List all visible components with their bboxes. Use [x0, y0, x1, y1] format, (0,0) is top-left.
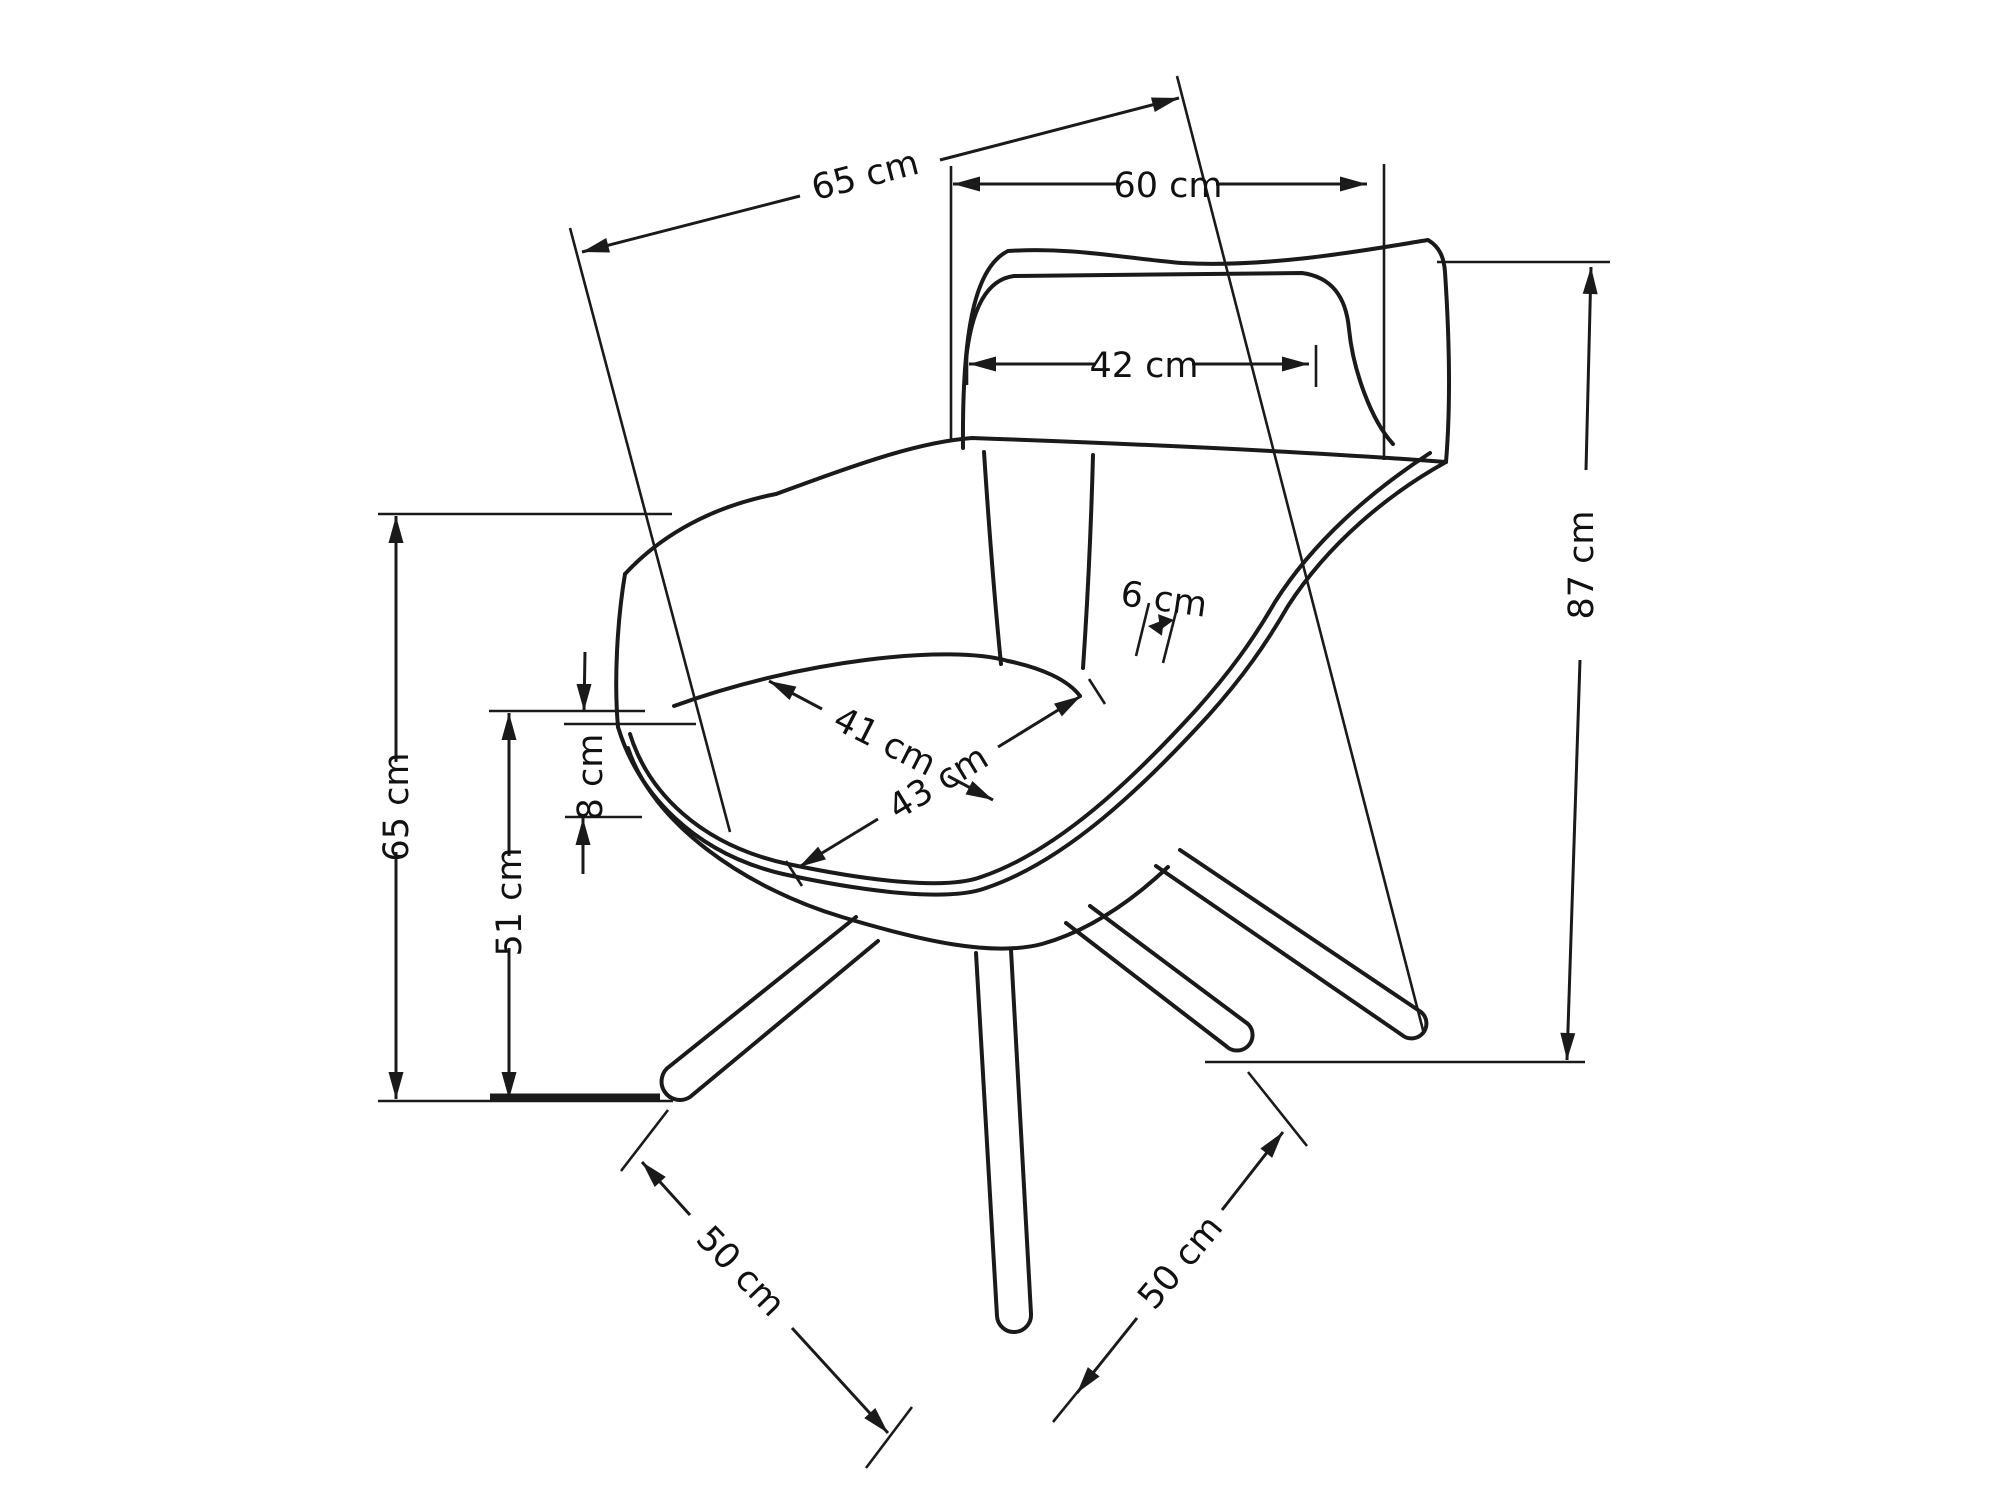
- dimension-arrowhead: [1282, 357, 1309, 372]
- extension-line: [1177, 76, 1424, 1034]
- dimension-seat-height: 51 cm: [378, 713, 673, 1101]
- dimension-rim-thickness: 6 cm: [1118, 574, 1209, 663]
- dimension-label: 6 cm: [1118, 574, 1209, 626]
- dimension-line: [1586, 267, 1591, 470]
- dimension-base-span-left: 50 cm: [621, 1110, 912, 1468]
- dimension-label: 8 cm: [571, 734, 611, 821]
- dimension-armrest-height: 65 cm: [377, 514, 672, 1099]
- dimension-label: 50 cm: [1130, 1208, 1231, 1317]
- extension-line: [1248, 1072, 1307, 1146]
- dimension-base-span-right: 50 cm: [1053, 1072, 1307, 1422]
- dimension-arrowhead: [1054, 696, 1081, 716]
- extension-line: [1089, 679, 1105, 704]
- left-armrest-front-edge: [616, 574, 625, 727]
- dimension-arrowhead: [799, 847, 826, 867]
- dimension-label: 42 cm: [1090, 346, 1199, 386]
- dimension-overall-depth: 65 cm: [570, 76, 1424, 1034]
- right-back-leg: [1156, 850, 1426, 1038]
- seat-rim-outer: [618, 462, 1446, 895]
- dimension-arrowhead: [1151, 97, 1179, 112]
- left-armrest-top-edge: [625, 494, 776, 574]
- chair-dimension-drawing: 65 cm60 cm42 cm6 cm41 cm43 cm87 cm65 cm5…: [0, 0, 2000, 1499]
- front-left-leg: [662, 917, 878, 1100]
- extension-line: [621, 1110, 668, 1171]
- dimension-arrowhead: [389, 1072, 404, 1099]
- dimension-arrowhead: [389, 516, 404, 543]
- chair-line-art: [616, 240, 1449, 1332]
- dimension-line: [940, 98, 1179, 160]
- dimension-arrowhead: [1260, 1132, 1283, 1158]
- seat-shell-bottom: [628, 748, 1168, 949]
- dimension-arrowhead: [577, 684, 592, 711]
- dimension-label: 65 cm: [377, 753, 417, 862]
- dimension-arrowhead: [1560, 1033, 1575, 1060]
- backrest-seam-left: [984, 452, 1001, 664]
- dimension-label: 60 cm: [1114, 166, 1223, 206]
- dimension-arrowhead: [576, 818, 591, 845]
- dimension-diagram: 65 cm60 cm42 cm6 cm41 cm43 cm87 cm65 cm5…: [0, 0, 2000, 1499]
- dimension-arrowhead: [582, 238, 610, 253]
- dimension-label: 50 cm: [688, 1219, 792, 1325]
- backrest-seam-right: [1083, 455, 1093, 668]
- right-front-leg: [1066, 906, 1253, 1051]
- dimension-headrest-width: 42 cm: [967, 345, 1316, 387]
- dimension-arrowhead: [502, 713, 517, 740]
- seat-cushion-crease: [674, 654, 1008, 706]
- dimension-arrowhead: [769, 681, 796, 700]
- seat-cushion-right-edge: [1008, 661, 1080, 696]
- dimension-line: [582, 196, 800, 252]
- dimension-label: 51 cm: [490, 848, 530, 957]
- dimension-arrowhead: [1340, 177, 1367, 192]
- dimension-label: 87 cm: [1562, 511, 1602, 620]
- dimension-cushion-thickness: 8 cm: [489, 652, 696, 874]
- dimension-label: 65 cm: [807, 143, 923, 209]
- dimension-arrowhead: [1583, 267, 1598, 294]
- dimension-line: [1567, 660, 1580, 1060]
- dimension-seat-width: 43 cm: [786, 679, 1105, 886]
- front-center-leg: [976, 950, 1031, 1332]
- dimension-arrowhead: [953, 177, 980, 192]
- dimension-backrest-width: 60 cm: [951, 164, 1384, 460]
- backrest-waist-seam: [776, 438, 1446, 494]
- dimension-arrowhead: [969, 357, 996, 372]
